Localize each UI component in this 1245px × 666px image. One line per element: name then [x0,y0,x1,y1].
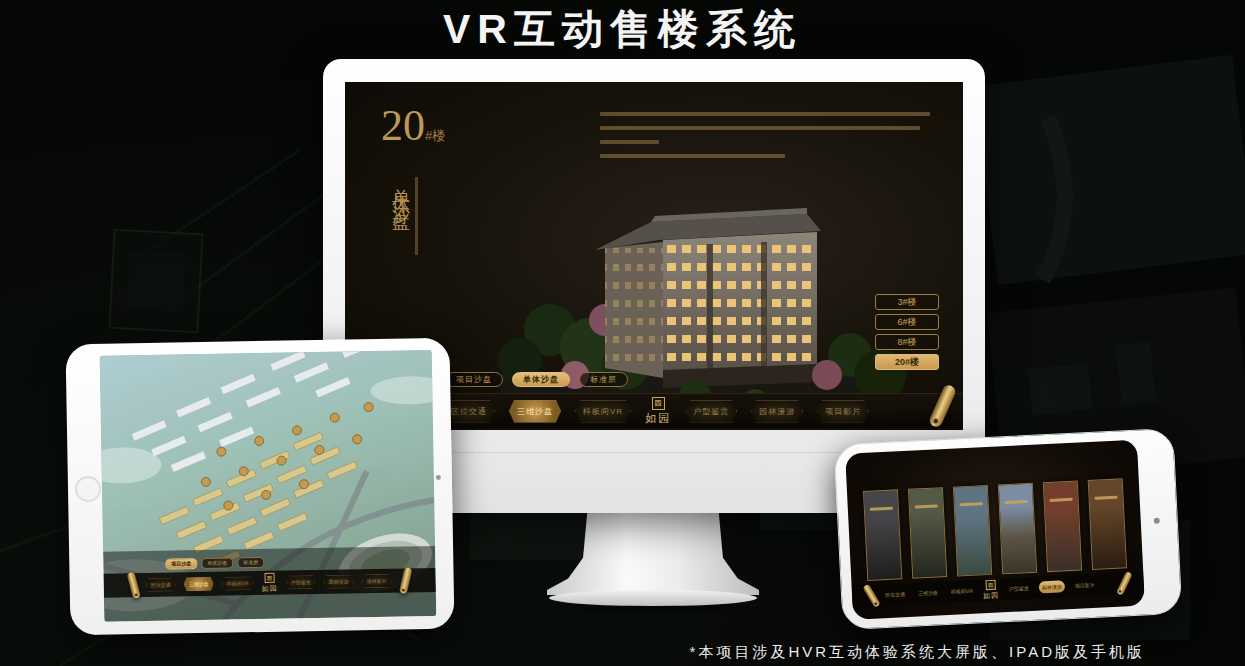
nav-item-film[interactable]: 项目影片 [1072,579,1099,592]
brand-logo-name: 如园 [645,411,671,426]
nav-item-units[interactable]: 户型鉴赏 [1006,582,1033,595]
panorama-panel[interactable] [1043,481,1082,573]
floor-button[interactable]: 8#楼 [875,334,939,350]
floor-button-selected[interactable]: 20#楼 [875,354,939,370]
home-button[interactable] [75,476,101,502]
block-number: 20 [381,101,425,150]
brand-logo-mark: 园 [985,579,995,589]
scroll-icon[interactable] [928,383,958,428]
panel-label [870,507,893,511]
subtab-single[interactable]: 单体沙盘 [201,557,233,569]
panel-label [1095,496,1118,500]
block-unit: #楼 [425,128,445,143]
poster-stage: VR互动售楼系统 [0,0,1245,666]
tablet-mockup: 项目沙盘 单体沙盘 标准层 区位交通 三维沙盘 样板间VR 园 如园 户型鉴赏 … [65,338,454,636]
nav-item-sandtable[interactable]: 三维沙盘 [915,586,942,599]
scroll-icon[interactable] [399,567,413,594]
monitor-stand-base [549,590,757,606]
subtab-floorplan[interactable]: 标准层 [237,557,264,568]
nav-item-showroom-vr[interactable]: 样板间VR [948,585,977,598]
nav-item-showroom-vr[interactable]: 样板间VR [222,576,254,591]
floor-button[interactable]: 6#楼 [875,314,939,330]
phone-screen: 区位交通 三维沙盘 样板间VR 园 如园 户型鉴赏 园林漫游 项目影片 [845,440,1145,620]
brand-logo-mark: 园 [264,572,274,582]
brand-logo: 园 如园 [645,397,671,426]
page-title: VR互动售楼系统 [0,2,1245,57]
subtab-project-selected[interactable]: 项目沙盘 [165,558,197,570]
camera-icon [436,475,441,480]
brand-logo-name: 如园 [262,583,278,593]
block-title-vertical: 单体沙盘 [389,174,413,206]
subtab-project[interactable]: 项目沙盘 [445,372,503,387]
subtab-floorplan[interactable]: 标准层 [579,372,628,387]
tablet-nav-overlay: 项目沙盘 单体沙盘 标准层 区位交通 三维沙盘 样板间VR 园 如园 户型鉴赏 … [103,554,436,598]
floor-button[interactable]: 3#楼 [875,294,939,310]
nav-item-sandtable-selected[interactable]: 三维沙盘 [184,577,214,592]
panorama-panel[interactable] [998,483,1037,575]
brand-logo-name: 如园 [983,590,999,601]
panorama-panel[interactable] [863,489,902,581]
panorama-panel[interactable] [953,485,992,577]
floor-button-group: 3#楼 6#楼 8#楼 20#楼 [875,294,941,374]
nav-item-units[interactable]: 户型鉴赏 [685,400,737,423]
nav-item-garden[interactable]: 园林漫游 [751,400,803,423]
block-title: 20#楼 [381,104,445,148]
nav-item-location[interactable]: 区位交通 [146,577,176,592]
phone-mockup: 区位交通 三维沙盘 样板间VR 园 如园 户型鉴赏 园林漫游 项目影片 [834,428,1183,630]
block-title-divider [415,177,418,255]
camera-icon [1154,518,1160,524]
brand-logo-mark: 园 [652,397,665,410]
nav-item-location[interactable]: 区位交通 [882,588,909,601]
brand-logo: 园 如园 [261,572,277,593]
nav-item-film[interactable]: 项目影片 [361,574,391,589]
nav-item-sandtable-selected[interactable]: 三维沙盘 [509,400,561,423]
panel-label [915,504,938,508]
panorama-panel-strip [863,478,1127,581]
sandtable-subtabs: 项目沙盘 单体沙盘 标准层 [445,372,628,387]
nav-item-garden[interactable]: 园林漫游 [324,574,354,589]
nav-item-film[interactable]: 项目影片 [817,400,869,423]
description-text-lines [600,112,930,168]
scroll-icon[interactable] [862,584,880,608]
panorama-panel[interactable] [1088,478,1127,570]
panorama-panel[interactable] [908,487,947,579]
brand-logo: 园 如园 [982,579,999,601]
panel-label [960,502,983,506]
building-render[interactable] [455,170,925,430]
nav-item-showroom-vr[interactable]: 样板间VR [575,400,631,423]
scroll-icon[interactable] [126,572,140,599]
scroll-icon[interactable] [1116,571,1133,596]
nav-item-garden-selected[interactable]: 园林漫游 [1039,580,1066,593]
footnote: *本项目涉及HVR互动体验系统大屏版、IPAD版及手机版 [690,643,1145,662]
tablet-screen: 项目沙盘 单体沙盘 标准层 区位交通 三维沙盘 样板间VR 园 如园 户型鉴赏 … [100,350,437,622]
panel-label [1050,498,1073,502]
subtab-single-selected[interactable]: 单体沙盘 [512,372,570,387]
panel-label [1005,500,1028,504]
nav-item-units[interactable]: 户型鉴赏 [286,575,316,590]
